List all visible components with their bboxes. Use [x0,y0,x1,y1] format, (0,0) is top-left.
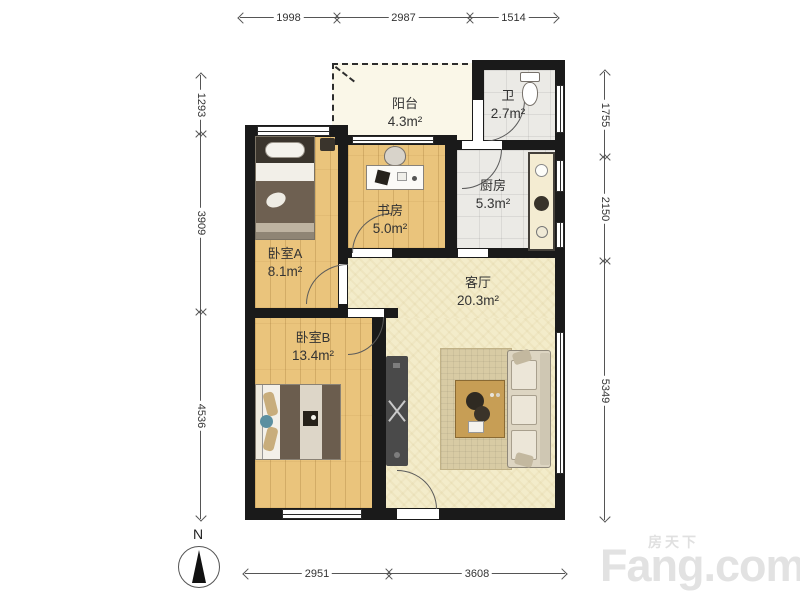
wall [245,125,255,520]
wall [472,60,565,70]
bed-a-bench [256,232,314,239]
sofa-back [540,353,550,465]
dim-bottom-1: 2951 [245,573,389,574]
tv-cabinet [386,356,408,466]
table-tray [474,406,490,422]
window [556,160,564,192]
bed-a [255,136,315,240]
sink [535,164,548,177]
pot [536,226,548,238]
dim-left-2: 3909 [200,134,201,312]
bed-a-pillow [265,142,305,158]
label-kitchen: 厨房5.3m² [448,178,538,212]
door-gap-kitchen [462,141,502,149]
laptop [375,170,391,186]
dim-right-1: 1755 [604,72,605,157]
label-balcony: 阳台4.3m² [355,96,455,130]
tray-dot [311,415,316,420]
bed-b-tray [303,411,318,426]
table-dot [490,393,494,397]
compass-north-label: N [193,526,203,542]
sofa-cushion [511,395,537,425]
window [556,85,564,133]
dim-right-2: 2150 [604,157,605,261]
label-living: 客厅20.3m² [433,275,523,309]
bed-a-sheet [256,163,314,181]
nightstand [320,138,335,151]
dim-top-2: 2987 [337,17,470,18]
sofa [507,350,551,468]
window [282,509,362,519]
dim-bottom-2: 3608 [389,573,565,574]
label-bedroom-a: 卧室A8.1m² [240,246,330,280]
desk-chair [384,146,406,166]
compass-needle-icon [192,550,206,583]
dim-left-3: 4536 [200,312,201,519]
tv-item [393,363,400,368]
desk [366,165,424,190]
kitchen-opening [458,249,488,257]
label-bathroom: 卫2.7m² [468,88,548,122]
window [556,332,564,474]
door-gap-bedroom-b [348,309,384,317]
toilet-tank [520,72,540,82]
floor-plan-canvas: 阳台4.3m² 卫2.7m² 厨房5.3m² 书房5.0m² 卧室A8.1m² … [0,0,800,600]
table-dot [496,393,500,397]
bed-b [255,384,341,460]
bed-b-cushion [260,415,273,428]
bed-b-pillow [262,426,278,452]
bed-a-foot [256,223,314,232]
table-card [468,421,484,433]
desk-item [412,176,417,181]
watermark-logo: Fang.com [600,540,800,592]
dim-top-3: 1514 [470,17,557,18]
coffee-table [455,380,505,438]
bed-a-blanket [256,181,314,223]
entry-door-gap [397,509,439,519]
bed-b-pillow [262,391,278,417]
desk-papers [397,172,407,181]
dim-left-1: 1293 [200,75,201,134]
dim-top-1: 1998 [240,17,337,18]
window [257,126,330,136]
window [352,136,434,144]
tv-item [394,452,400,458]
label-study: 书房5.0m² [345,203,435,237]
window [556,222,564,248]
dim-right-3: 5349 [604,261,605,520]
label-bedroom-b: 卧室B13.4m² [268,330,358,364]
